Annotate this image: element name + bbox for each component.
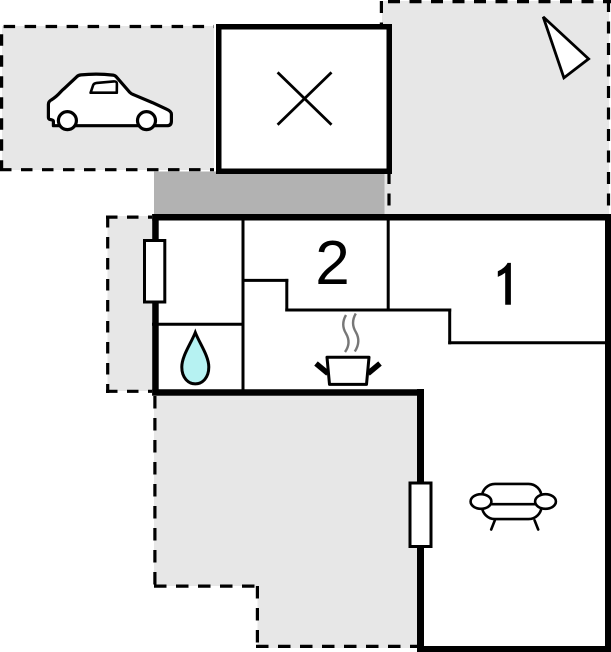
svg-text:2: 2 — [315, 229, 349, 298]
